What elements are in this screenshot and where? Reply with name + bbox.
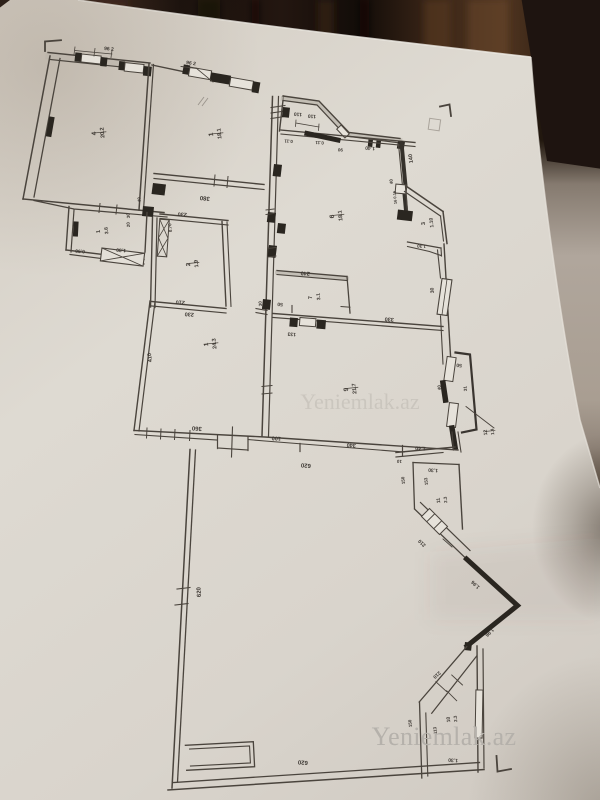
svg-text:340: 340 <box>347 441 357 448</box>
svg-text:0.90: 0.90 <box>75 247 85 254</box>
svg-text:620: 620 <box>297 758 308 765</box>
svg-text:90: 90 <box>337 147 343 152</box>
svg-text:150: 150 <box>400 476 406 484</box>
svg-text:240: 240 <box>301 269 311 276</box>
svg-text:133: 133 <box>287 330 296 337</box>
svg-text:3.1: 3.1 <box>316 293 323 301</box>
svg-text:1: 1 <box>96 230 102 234</box>
svg-text:360: 360 <box>191 424 202 431</box>
svg-text:0.11: 0.11 <box>315 140 324 146</box>
svg-text:0.11: 0.11 <box>284 138 293 144</box>
svg-text:50: 50 <box>456 362 462 368</box>
svg-text:11: 11 <box>436 497 443 503</box>
svg-text:7: 7 <box>308 296 314 300</box>
svg-text:1.30: 1.30 <box>428 466 438 473</box>
svg-text:140: 140 <box>408 154 415 164</box>
svg-text:1.30: 1.30 <box>116 246 126 253</box>
svg-text:230: 230 <box>178 210 188 217</box>
svg-text:330: 330 <box>385 315 395 322</box>
svg-text:230: 230 <box>185 310 195 317</box>
svg-text:Yeniemlak.az: Yeniemlak.az <box>300 389 420 414</box>
svg-text:50: 50 <box>277 301 283 307</box>
svg-text:380: 380 <box>199 194 210 201</box>
svg-text:3: 3 <box>421 222 427 226</box>
svg-text:1.9: 1.9 <box>194 259 201 267</box>
svg-text:10: 10 <box>396 459 402 464</box>
svg-text:1.4: 1.4 <box>490 428 496 435</box>
svg-text:1.10: 1.10 <box>428 217 435 228</box>
svg-text:1.30: 1.30 <box>416 243 426 249</box>
svg-text:3.8: 3.8 <box>104 227 111 235</box>
svg-text:96 2: 96 2 <box>104 46 114 53</box>
svg-text:1.30: 1.30 <box>448 756 458 763</box>
svg-text:210: 210 <box>176 298 186 305</box>
svg-text:1.40: 1.40 <box>365 144 375 151</box>
svg-text:620: 620 <box>196 586 203 597</box>
svg-text:410: 410 <box>147 353 154 363</box>
svg-text:2.3: 2.3 <box>443 496 449 503</box>
svg-text:12: 12 <box>483 429 490 435</box>
svg-text:100: 100 <box>272 434 282 441</box>
svg-text:Yeniemlak.az: Yeniemlak.az <box>372 722 517 751</box>
svg-text:0.70: 0.70 <box>167 223 173 233</box>
svg-text:1.40: 1.40 <box>415 444 426 451</box>
svg-text:153: 153 <box>423 477 429 485</box>
svg-text:18.1: 18.1 <box>337 210 344 221</box>
svg-text:620: 620 <box>300 461 311 468</box>
svg-text:110: 110 <box>307 112 316 119</box>
svg-text:110: 110 <box>293 110 302 117</box>
svg-text:30: 30 <box>429 287 436 293</box>
